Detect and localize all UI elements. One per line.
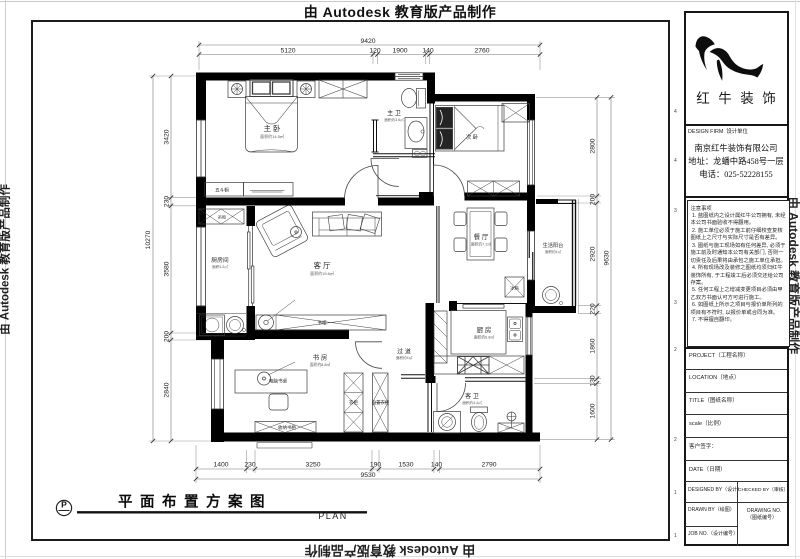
- svg-text:书 房: 书 房: [313, 353, 328, 362]
- svg-text:面积约6.8㎡: 面积约6.8㎡: [474, 335, 495, 340]
- svg-text:120: 120: [369, 48, 381, 55]
- svg-text:面积约14.5㎡: 面积约14.5㎡: [260, 133, 284, 139]
- svg-text:主 卫: 主 卫: [387, 109, 401, 117]
- svg-text:1860: 1860: [590, 338, 597, 353]
- svg-text:220: 220: [590, 303, 597, 315]
- svg-text:230: 230: [164, 196, 171, 208]
- svg-text:次 卧: 次 卧: [466, 133, 479, 141]
- svg-text:冰箱: 冰箱: [510, 285, 518, 292]
- svg-text:1400: 1400: [213, 462, 228, 469]
- svg-text:餐 厅: 餐 厅: [474, 232, 489, 241]
- svg-text:9420: 9420: [360, 38, 375, 45]
- svg-text:厨房间: 厨房间: [211, 256, 229, 264]
- svg-text:衣柜: 衣柜: [349, 399, 359, 406]
- svg-text:面积约4.4㎡: 面积约4.4㎡: [462, 400, 482, 405]
- svg-text:自置衣柜: 自置衣柜: [372, 399, 390, 406]
- svg-text:面积约19.6㎡: 面积约19.6㎡: [310, 270, 334, 276]
- svg-text:2840: 2840: [164, 382, 171, 397]
- svg-text:生活阳台: 生活阳台: [543, 241, 564, 249]
- svg-text:9530: 9530: [360, 472, 375, 479]
- svg-text:平面布置方案图: 平面布置方案图: [118, 493, 272, 511]
- svg-text:收纳书柜: 收纳书柜: [278, 424, 297, 431]
- svg-text:面积约7.2㎡: 面积约7.2㎡: [471, 242, 492, 247]
- svg-text:P: P: [61, 500, 67, 510]
- svg-text:面积约4㎡: 面积约4㎡: [545, 249, 561, 254]
- svg-text:1530: 1530: [398, 462, 413, 469]
- svg-text:9630: 9630: [604, 250, 611, 265]
- svg-text:面积4.2㎡: 面积4.2㎡: [212, 264, 228, 269]
- svg-text:客 厅: 客 厅: [313, 260, 331, 270]
- svg-text:电脑书桌: 电脑书桌: [269, 378, 288, 385]
- svg-text:140: 140: [431, 462, 443, 469]
- svg-text:五斗橱: 五斗橱: [215, 187, 229, 194]
- svg-text:PLAN: PLAN: [318, 511, 348, 521]
- svg-text:190: 190: [370, 462, 382, 469]
- svg-text:230: 230: [244, 462, 256, 469]
- svg-text:1900: 1900: [392, 48, 407, 55]
- svg-text:面积约8.8㎡: 面积约8.8㎡: [310, 362, 331, 367]
- svg-text:200: 200: [164, 331, 171, 343]
- svg-text:客 卫: 客 卫: [465, 392, 479, 400]
- svg-text:面积约3.6㎡: 面积约3.6㎡: [384, 117, 404, 122]
- svg-text:厨 房: 厨 房: [477, 325, 492, 334]
- svg-text:3250: 3250: [305, 462, 320, 469]
- svg-text:主 卧: 主 卧: [263, 123, 281, 133]
- svg-text:2800: 2800: [590, 138, 597, 153]
- svg-text:过 道: 过 道: [397, 348, 411, 356]
- svg-text:2920: 2920: [590, 246, 597, 261]
- svg-text:200: 200: [590, 194, 597, 206]
- svg-text:2790: 2790: [481, 462, 496, 469]
- svg-text:书柜: 书柜: [317, 320, 327, 327]
- svg-text:1600: 1600: [590, 403, 597, 418]
- svg-text:吊柜: 吊柜: [218, 214, 226, 221]
- svg-text:面积约4㎡: 面积约4㎡: [396, 355, 413, 360]
- svg-text:5120: 5120: [280, 48, 295, 55]
- svg-text:140: 140: [422, 48, 434, 55]
- svg-text:2760: 2760: [474, 48, 489, 55]
- svg-text:130: 130: [590, 375, 597, 387]
- svg-text:3580: 3580: [164, 261, 171, 276]
- svg-text:3420: 3420: [164, 129, 171, 144]
- svg-text:10270: 10270: [145, 230, 152, 249]
